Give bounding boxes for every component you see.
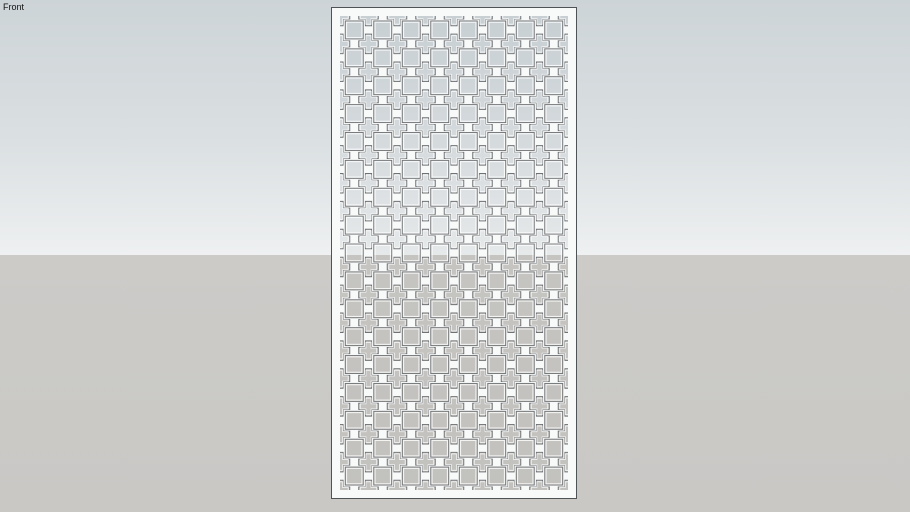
square-hole	[402, 132, 420, 150]
square-hole	[459, 132, 477, 150]
square-hole	[516, 272, 534, 290]
square-hole	[545, 188, 563, 206]
square-hole	[402, 439, 420, 457]
square-hole	[374, 105, 392, 123]
square-hole	[459, 77, 477, 95]
square-hole	[402, 411, 420, 429]
square-hole	[374, 300, 392, 318]
square-hole	[459, 244, 477, 262]
square-hole	[402, 272, 420, 290]
square-hole	[545, 272, 563, 290]
square-hole	[374, 439, 392, 457]
square-hole	[431, 216, 449, 234]
square-hole	[402, 328, 420, 346]
square-hole	[345, 439, 363, 457]
square-hole	[459, 439, 477, 457]
square-hole	[402, 356, 420, 374]
square-hole	[459, 105, 477, 123]
square-hole	[431, 383, 449, 401]
square-hole	[374, 216, 392, 234]
square-hole	[431, 467, 449, 485]
square-hole	[545, 77, 563, 95]
square-hole	[402, 467, 420, 485]
square-hole	[345, 328, 363, 346]
square-hole	[488, 188, 506, 206]
square-hole	[345, 356, 363, 374]
square-hole	[431, 411, 449, 429]
square-hole	[545, 49, 563, 67]
square-hole	[488, 244, 506, 262]
square-hole	[516, 105, 534, 123]
square-hole	[431, 77, 449, 95]
square-hole	[402, 160, 420, 178]
square-hole	[374, 188, 392, 206]
view-name-label: Front	[3, 2, 24, 13]
square-hole	[431, 356, 449, 374]
square-hole	[516, 160, 534, 178]
square-hole	[374, 467, 392, 485]
square-hole	[459, 383, 477, 401]
square-hole	[516, 49, 534, 67]
square-hole	[545, 132, 563, 150]
square-hole	[459, 21, 477, 39]
square-hole	[516, 77, 534, 95]
square-hole	[345, 467, 363, 485]
square-hole	[516, 328, 534, 346]
square-hole	[431, 160, 449, 178]
square-hole	[459, 411, 477, 429]
square-hole	[431, 328, 449, 346]
square-hole	[459, 467, 477, 485]
square-hole	[516, 188, 534, 206]
square-hole	[545, 21, 563, 39]
square-hole	[374, 244, 392, 262]
square-hole	[545, 467, 563, 485]
square-hole	[516, 411, 534, 429]
square-hole	[459, 328, 477, 346]
square-hole	[488, 77, 506, 95]
square-hole	[545, 160, 563, 178]
square-hole	[374, 272, 392, 290]
square-hole	[402, 49, 420, 67]
square-hole	[374, 132, 392, 150]
square-hole	[402, 383, 420, 401]
square-hole	[345, 411, 363, 429]
square-hole	[345, 21, 363, 39]
square-hole	[488, 383, 506, 401]
square-hole	[488, 272, 506, 290]
square-hole	[516, 216, 534, 234]
square-hole	[488, 328, 506, 346]
square-hole	[459, 356, 477, 374]
square-hole	[345, 77, 363, 95]
square-hole	[374, 383, 392, 401]
square-hole	[488, 467, 506, 485]
square-hole	[516, 383, 534, 401]
square-hole	[374, 77, 392, 95]
square-hole	[488, 216, 506, 234]
square-hole	[488, 49, 506, 67]
square-hole	[459, 188, 477, 206]
square-hole	[345, 105, 363, 123]
square-hole	[374, 411, 392, 429]
square-hole	[402, 300, 420, 318]
square-hole	[545, 300, 563, 318]
square-hole	[431, 21, 449, 39]
square-hole	[516, 439, 534, 457]
square-hole	[374, 356, 392, 374]
scene-canvas[interactable]	[0, 0, 910, 512]
square-hole	[459, 49, 477, 67]
square-hole	[545, 356, 563, 374]
square-hole	[345, 160, 363, 178]
square-hole	[459, 216, 477, 234]
3d-viewport[interactable]: Front	[0, 0, 910, 512]
square-hole	[374, 49, 392, 67]
square-hole	[488, 439, 506, 457]
square-hole	[545, 216, 563, 234]
square-hole	[516, 21, 534, 39]
square-hole	[545, 439, 563, 457]
square-hole	[516, 467, 534, 485]
square-hole	[516, 132, 534, 150]
square-hole	[516, 244, 534, 262]
square-hole	[402, 105, 420, 123]
square-hole	[402, 188, 420, 206]
square-hole	[488, 160, 506, 178]
square-hole	[488, 105, 506, 123]
square-hole	[431, 188, 449, 206]
square-hole	[431, 132, 449, 150]
square-hole	[431, 244, 449, 262]
square-hole	[402, 244, 420, 262]
square-hole	[459, 160, 477, 178]
square-hole	[488, 300, 506, 318]
decorative-panel	[330, 6, 578, 500]
square-hole	[431, 105, 449, 123]
square-hole	[488, 411, 506, 429]
square-hole	[345, 300, 363, 318]
square-hole	[402, 216, 420, 234]
square-hole	[488, 356, 506, 374]
square-hole	[345, 244, 363, 262]
square-hole	[488, 132, 506, 150]
square-hole	[402, 77, 420, 95]
square-hole	[374, 328, 392, 346]
square-hole	[345, 272, 363, 290]
square-hole	[545, 411, 563, 429]
square-hole	[374, 21, 392, 39]
square-hole	[345, 216, 363, 234]
square-hole	[431, 300, 449, 318]
square-hole	[516, 300, 534, 318]
square-hole	[345, 188, 363, 206]
square-hole	[488, 21, 506, 39]
square-hole	[545, 328, 563, 346]
square-hole	[402, 21, 420, 39]
square-hole	[345, 383, 363, 401]
square-hole	[374, 160, 392, 178]
square-hole	[345, 132, 363, 150]
square-hole	[545, 383, 563, 401]
square-hole	[431, 439, 449, 457]
square-hole	[345, 49, 363, 67]
square-hole	[459, 272, 477, 290]
square-hole	[545, 105, 563, 123]
square-hole	[459, 300, 477, 318]
square-hole	[545, 244, 563, 262]
square-hole	[431, 49, 449, 67]
square-hole	[431, 272, 449, 290]
square-hole	[516, 356, 534, 374]
